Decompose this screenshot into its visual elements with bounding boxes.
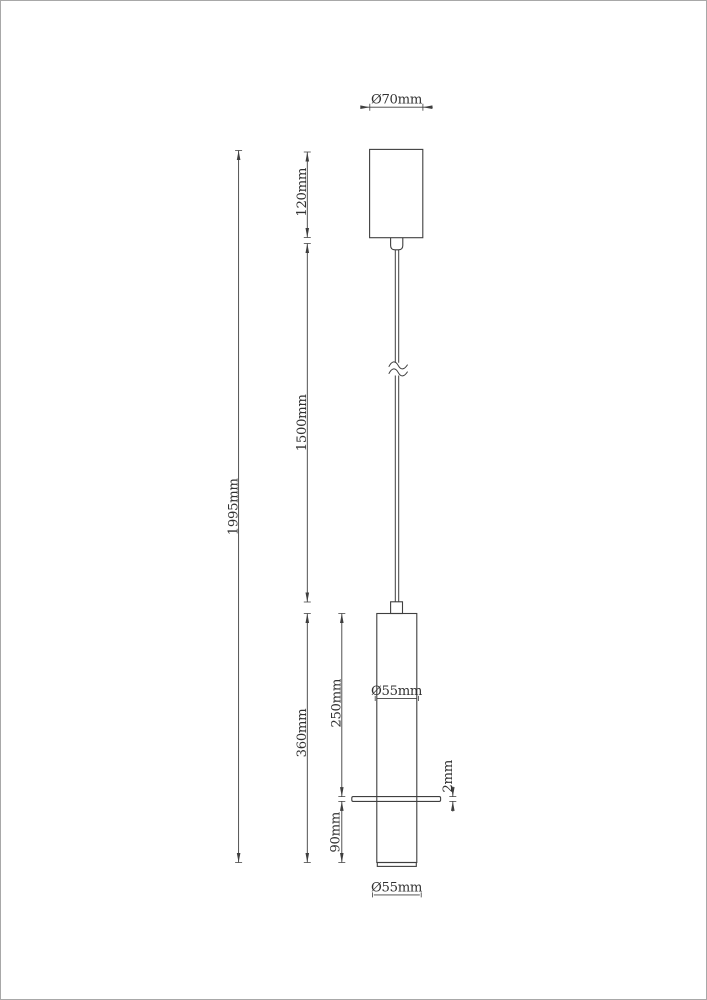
dim-label-total-height: 1995mm [226,478,241,536]
dim-label-canopy-diameter: Ø70mm [371,93,423,108]
dim-label-canopy-height: 120mm [295,167,310,216]
dim-label-disc-thickness: 2mm [441,759,456,792]
dimension-drawing: Ø70mm 120mm 1995mm 1500mm 360mm 250mm 90… [0,0,707,1000]
dim-label-body-diameter: Ø55mm [371,684,423,699]
drawing-canvas: Ø70mm 120mm 1995mm 1500mm 360mm 250mm 90… [0,0,707,1000]
dim-label-upper-body: 250mm [329,678,344,727]
page-border [1,1,707,1000]
dim-label-body-height: 360mm [295,708,310,757]
dim-label-bottom-diameter: Ø55mm [371,881,423,896]
dim-label-lower-body: 90mm [328,811,343,852]
dim-label-cable-length: 1500mm [295,394,310,452]
